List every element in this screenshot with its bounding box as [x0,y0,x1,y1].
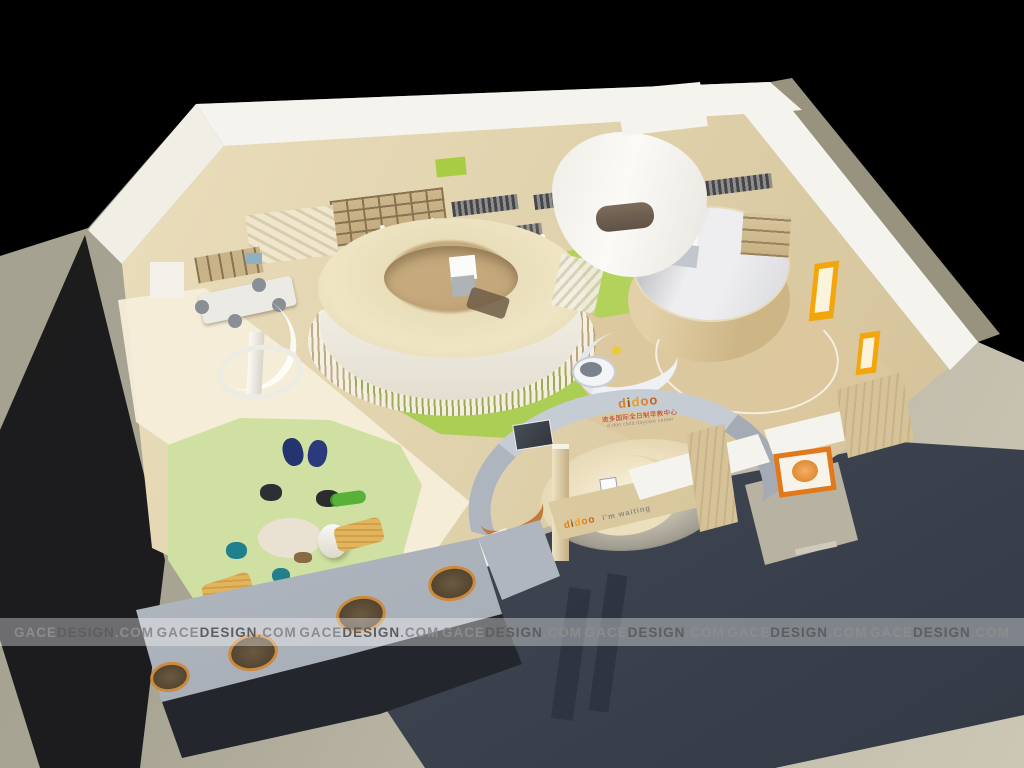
watermark-text-part: GACE [442,625,485,640]
watermark-text-part: .COM [115,625,154,640]
watermark-text-part: .COM [685,625,724,640]
watermark-text-part: .COM [400,625,439,640]
wood-toy [294,552,312,563]
watermark-text-part: GACE [870,625,913,640]
brand-letter: o [587,514,596,526]
slide-exit-hole [580,362,602,377]
watermark-text: GACEDESIGN.COM [727,625,867,640]
watermark-text-part: DESIGN [913,625,971,640]
office-chair [252,278,266,292]
watermark-text-part: DESIGN [57,625,115,640]
watermark-text-part: GACE [299,625,342,640]
mezzanine-green-panel [435,156,467,177]
office-cabinet [150,262,184,298]
watermark-text: GACEDESIGN.COM [14,625,154,640]
watermark-text-part: DESIGN [342,625,400,640]
watermark-text: GACEDESIGN.COM [299,625,439,640]
watermark-text-part: .COM [828,625,867,640]
play-ball [612,346,621,355]
watermark-text-part: DESIGN [200,625,258,640]
watermark-text: GACEDESIGN.COM [870,625,1010,640]
watermark-text-part: DESIGN [770,625,828,640]
render-canvas: didoo 迪多国际全日制早教中心 d-doo child daycare ce… [0,0,1024,768]
wall-screen [246,253,262,264]
watermark-text-part: GACE [14,625,57,640]
watermark-text-part: GACE [585,625,628,640]
brand-letter: o [649,392,659,408]
dark-bean-bag [260,484,282,501]
watermark-text: GACEDESIGN.COM [157,625,297,640]
watermark-text-part: GACE [727,625,770,640]
watermark-band: GACEDESIGN.COMGACEDESIGN.COMGACEDESIGN.C… [0,618,1024,646]
toy-shelf [741,212,792,257]
watermark-text: GACEDESIGN.COM [442,625,582,640]
round-rug [258,518,322,558]
watermark-text-part: DESIGN [628,625,686,640]
watermark-text-part: .COM [971,625,1010,640]
teal-bean-bag [226,542,247,559]
watermark-text-part: .COM [543,625,582,640]
watermark-text-part: GACE [157,625,200,640]
watermark-text: GACEDESIGN.COM [585,625,725,640]
watermark-text-part: DESIGN [485,625,543,640]
watermark-text-part: .COM [257,625,296,640]
